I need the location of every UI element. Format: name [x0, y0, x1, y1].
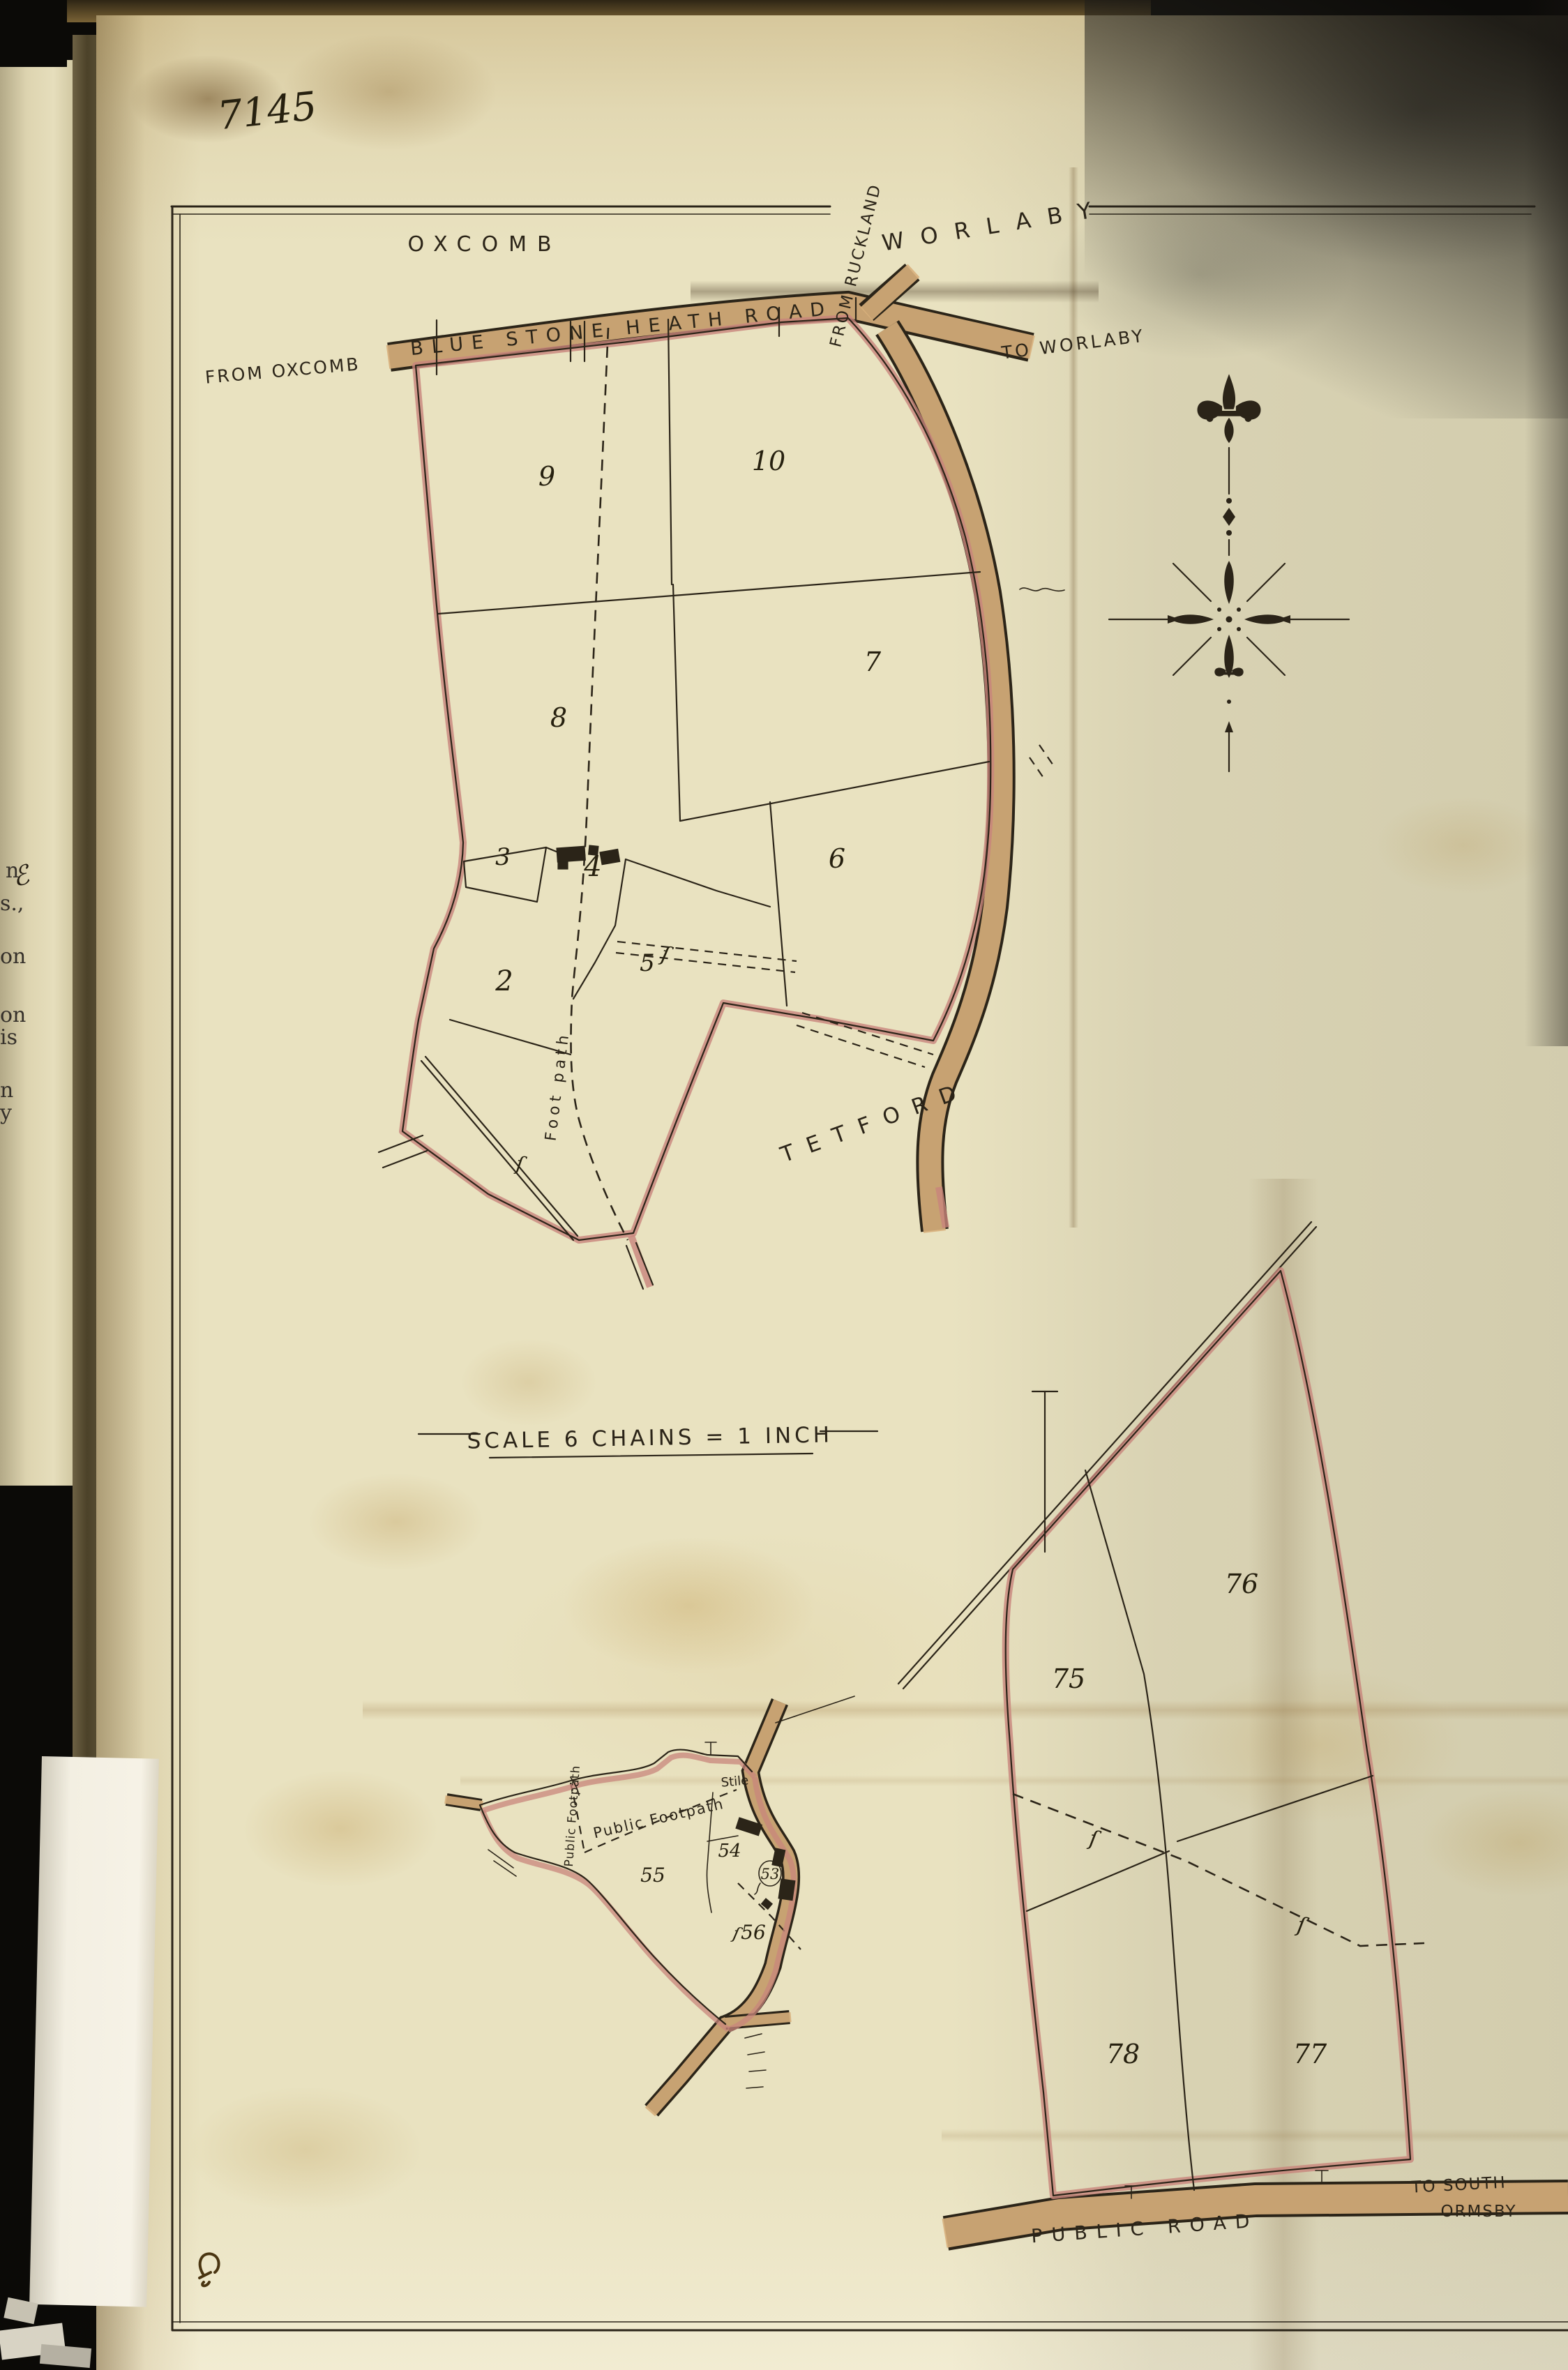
fleur-de-lis-icon: [1214, 656, 1243, 677]
shadow-overlay: [1085, 0, 1568, 418]
map-border: [172, 206, 1568, 2330]
parcel-53: 53: [761, 1866, 780, 1882]
ink-blot: [199, 2254, 219, 2286]
parcel-77: 77: [1293, 2039, 1327, 2069]
label-worlaby: WORLABY: [880, 195, 1110, 257]
parcel-78: 78: [1106, 2039, 1140, 2069]
field-boundaries: [379, 298, 1373, 2190]
parcel-75: 75: [1052, 1663, 1085, 1694]
squiggle-mark: ſ: [658, 942, 675, 968]
page-edge-shadow: [1525, 0, 1568, 1046]
parcel-5: 5: [640, 949, 655, 977]
parcel-10: 10: [752, 446, 785, 476]
plan-number: 7145: [216, 84, 319, 139]
parcel-9: 9: [538, 461, 555, 492]
label-blue-stone-heath-road: BLUE STONE HEATH ROAD: [409, 298, 834, 360]
label-oxcomb: OXCOMB: [407, 232, 561, 257]
scanned-estate-map: ℰ n s., on on is n y: [0, 0, 1568, 2370]
label-from-oxcomb: FROM OXCOMB: [204, 354, 361, 387]
parcel-3: 3: [495, 843, 511, 871]
label-public-footpath-vertical: Public Footpath: [562, 1765, 583, 1867]
squiggle-mark: ſ: [1294, 1912, 1311, 1939]
label-stile: Stile: [721, 1773, 749, 1790]
parcel-55: 55: [640, 1864, 665, 1887]
parcel-54: 54: [718, 1841, 741, 1862]
parcel-6: 6: [829, 843, 845, 874]
parcel-7: 7: [864, 647, 882, 677]
parcel-76: 76: [1225, 1569, 1258, 1599]
parcel-56: 56: [741, 1921, 766, 1944]
compass-rose: [1109, 374, 1349, 771]
parcel-2: 2: [495, 965, 513, 997]
parcel-4: 4: [583, 851, 601, 883]
estate-boundaries: [402, 318, 1410, 2196]
label-ormsby: ORMSBY: [1440, 2203, 1516, 2221]
scale-note: SCALE 6 CHAINS = 1 INCH: [467, 1422, 833, 1454]
squiggle-mark: ſ: [513, 1152, 528, 1176]
boundary-outlines: [402, 318, 1410, 2196]
squiggle-mark: ſ: [1086, 1826, 1103, 1852]
parcel-8: 8: [550, 702, 567, 733]
label-public-footpath-diagonal: Public Footpath: [591, 1795, 725, 1842]
